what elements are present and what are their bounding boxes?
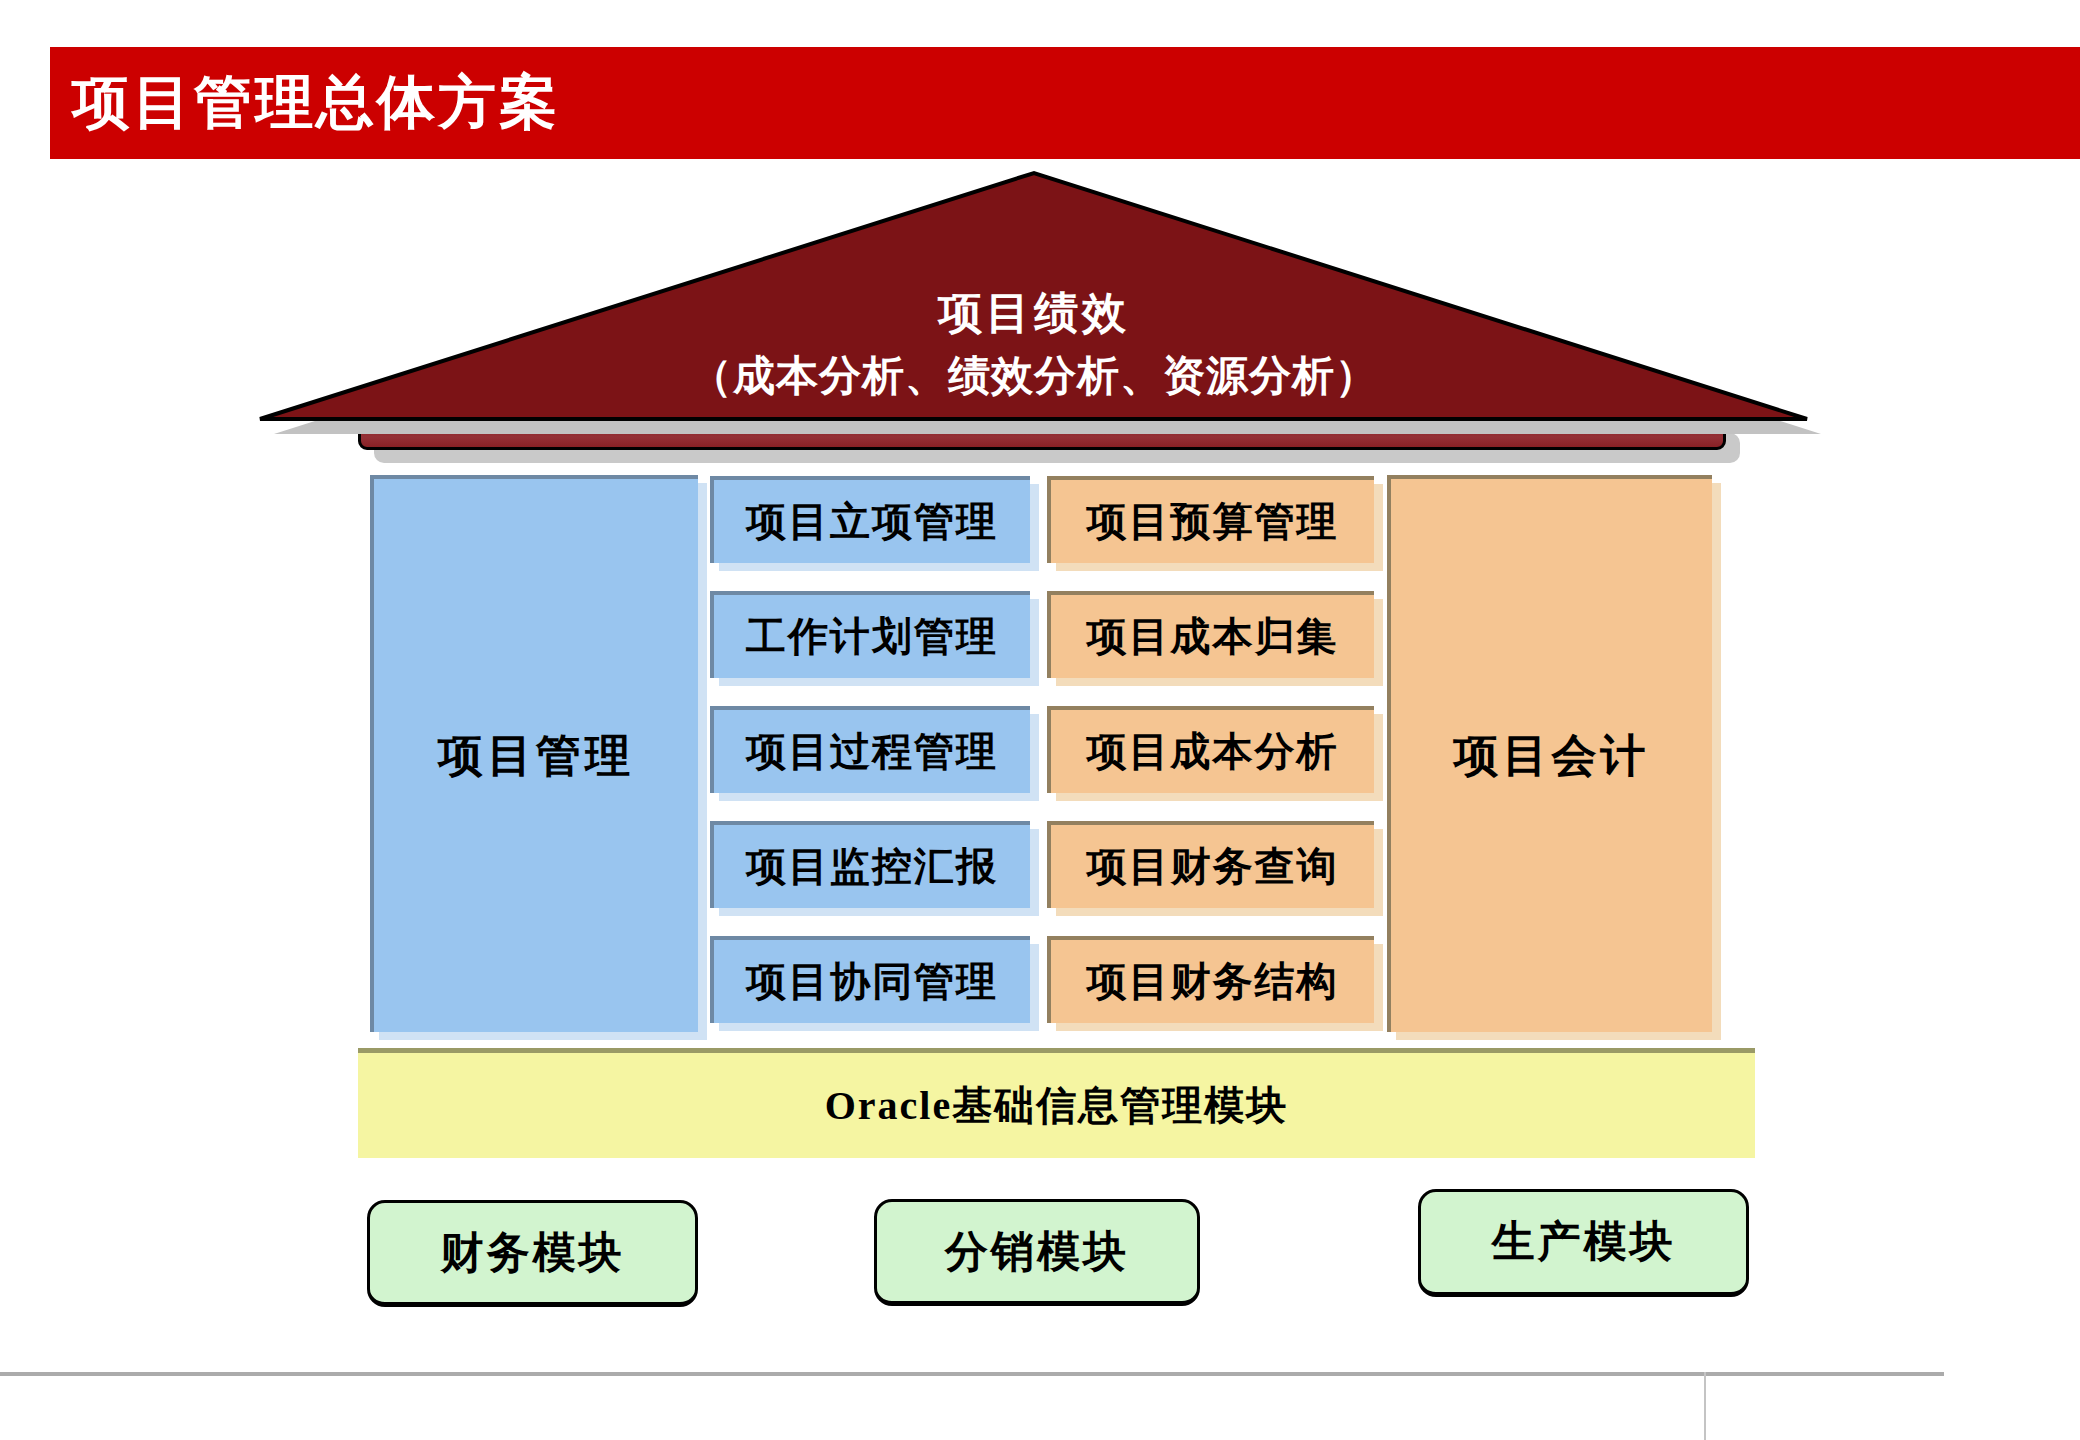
base-module-finance: 财务模块 — [367, 1200, 698, 1307]
module-project-initiation: 项目立项管理 — [710, 476, 1030, 563]
footer-vertical-tick — [1704, 1372, 1706, 1440]
module-work-plan: 工作计划管理 — [710, 591, 1030, 678]
module-cost-analysis: 项目成本分析 — [1047, 706, 1374, 793]
slide: 项目管理总体方案 项目绩效 （成本分析、绩效分析、资源分析） 项目管理 项目立项… — [0, 0, 2080, 1440]
roof-label-line2: （成本分析、绩效分析、资源分析） — [534, 348, 1534, 404]
module-project-budget: 项目预算管理 — [1047, 476, 1374, 563]
roof-beam — [358, 419, 1726, 450]
module-finance-structure: 项目财务结构 — [1047, 936, 1374, 1023]
module-project-process: 项目过程管理 — [710, 706, 1030, 793]
module-project-collaboration: 项目协同管理 — [710, 936, 1030, 1023]
platform-oracle-base-info: Oracle基础信息管理模块 — [358, 1048, 1755, 1158]
slide-title: 项目管理总体方案 — [50, 64, 560, 142]
module-cost-collection: 项目成本归集 — [1047, 591, 1374, 678]
title-bar: 项目管理总体方案 — [50, 47, 2080, 159]
module-project-monitoring: 项目监控汇报 — [710, 821, 1030, 908]
pillar-project-management: 项目管理 — [370, 475, 698, 1032]
module-finance-query: 项目财务查询 — [1047, 821, 1374, 908]
pillar-project-accounting: 项目会计 — [1387, 475, 1712, 1032]
footer-divider — [0, 1372, 1944, 1376]
roof-label-line1: 项目绩效 — [534, 284, 1534, 343]
base-module-production: 生产模块 — [1418, 1189, 1749, 1297]
base-module-distribution: 分销模块 — [874, 1199, 1200, 1306]
